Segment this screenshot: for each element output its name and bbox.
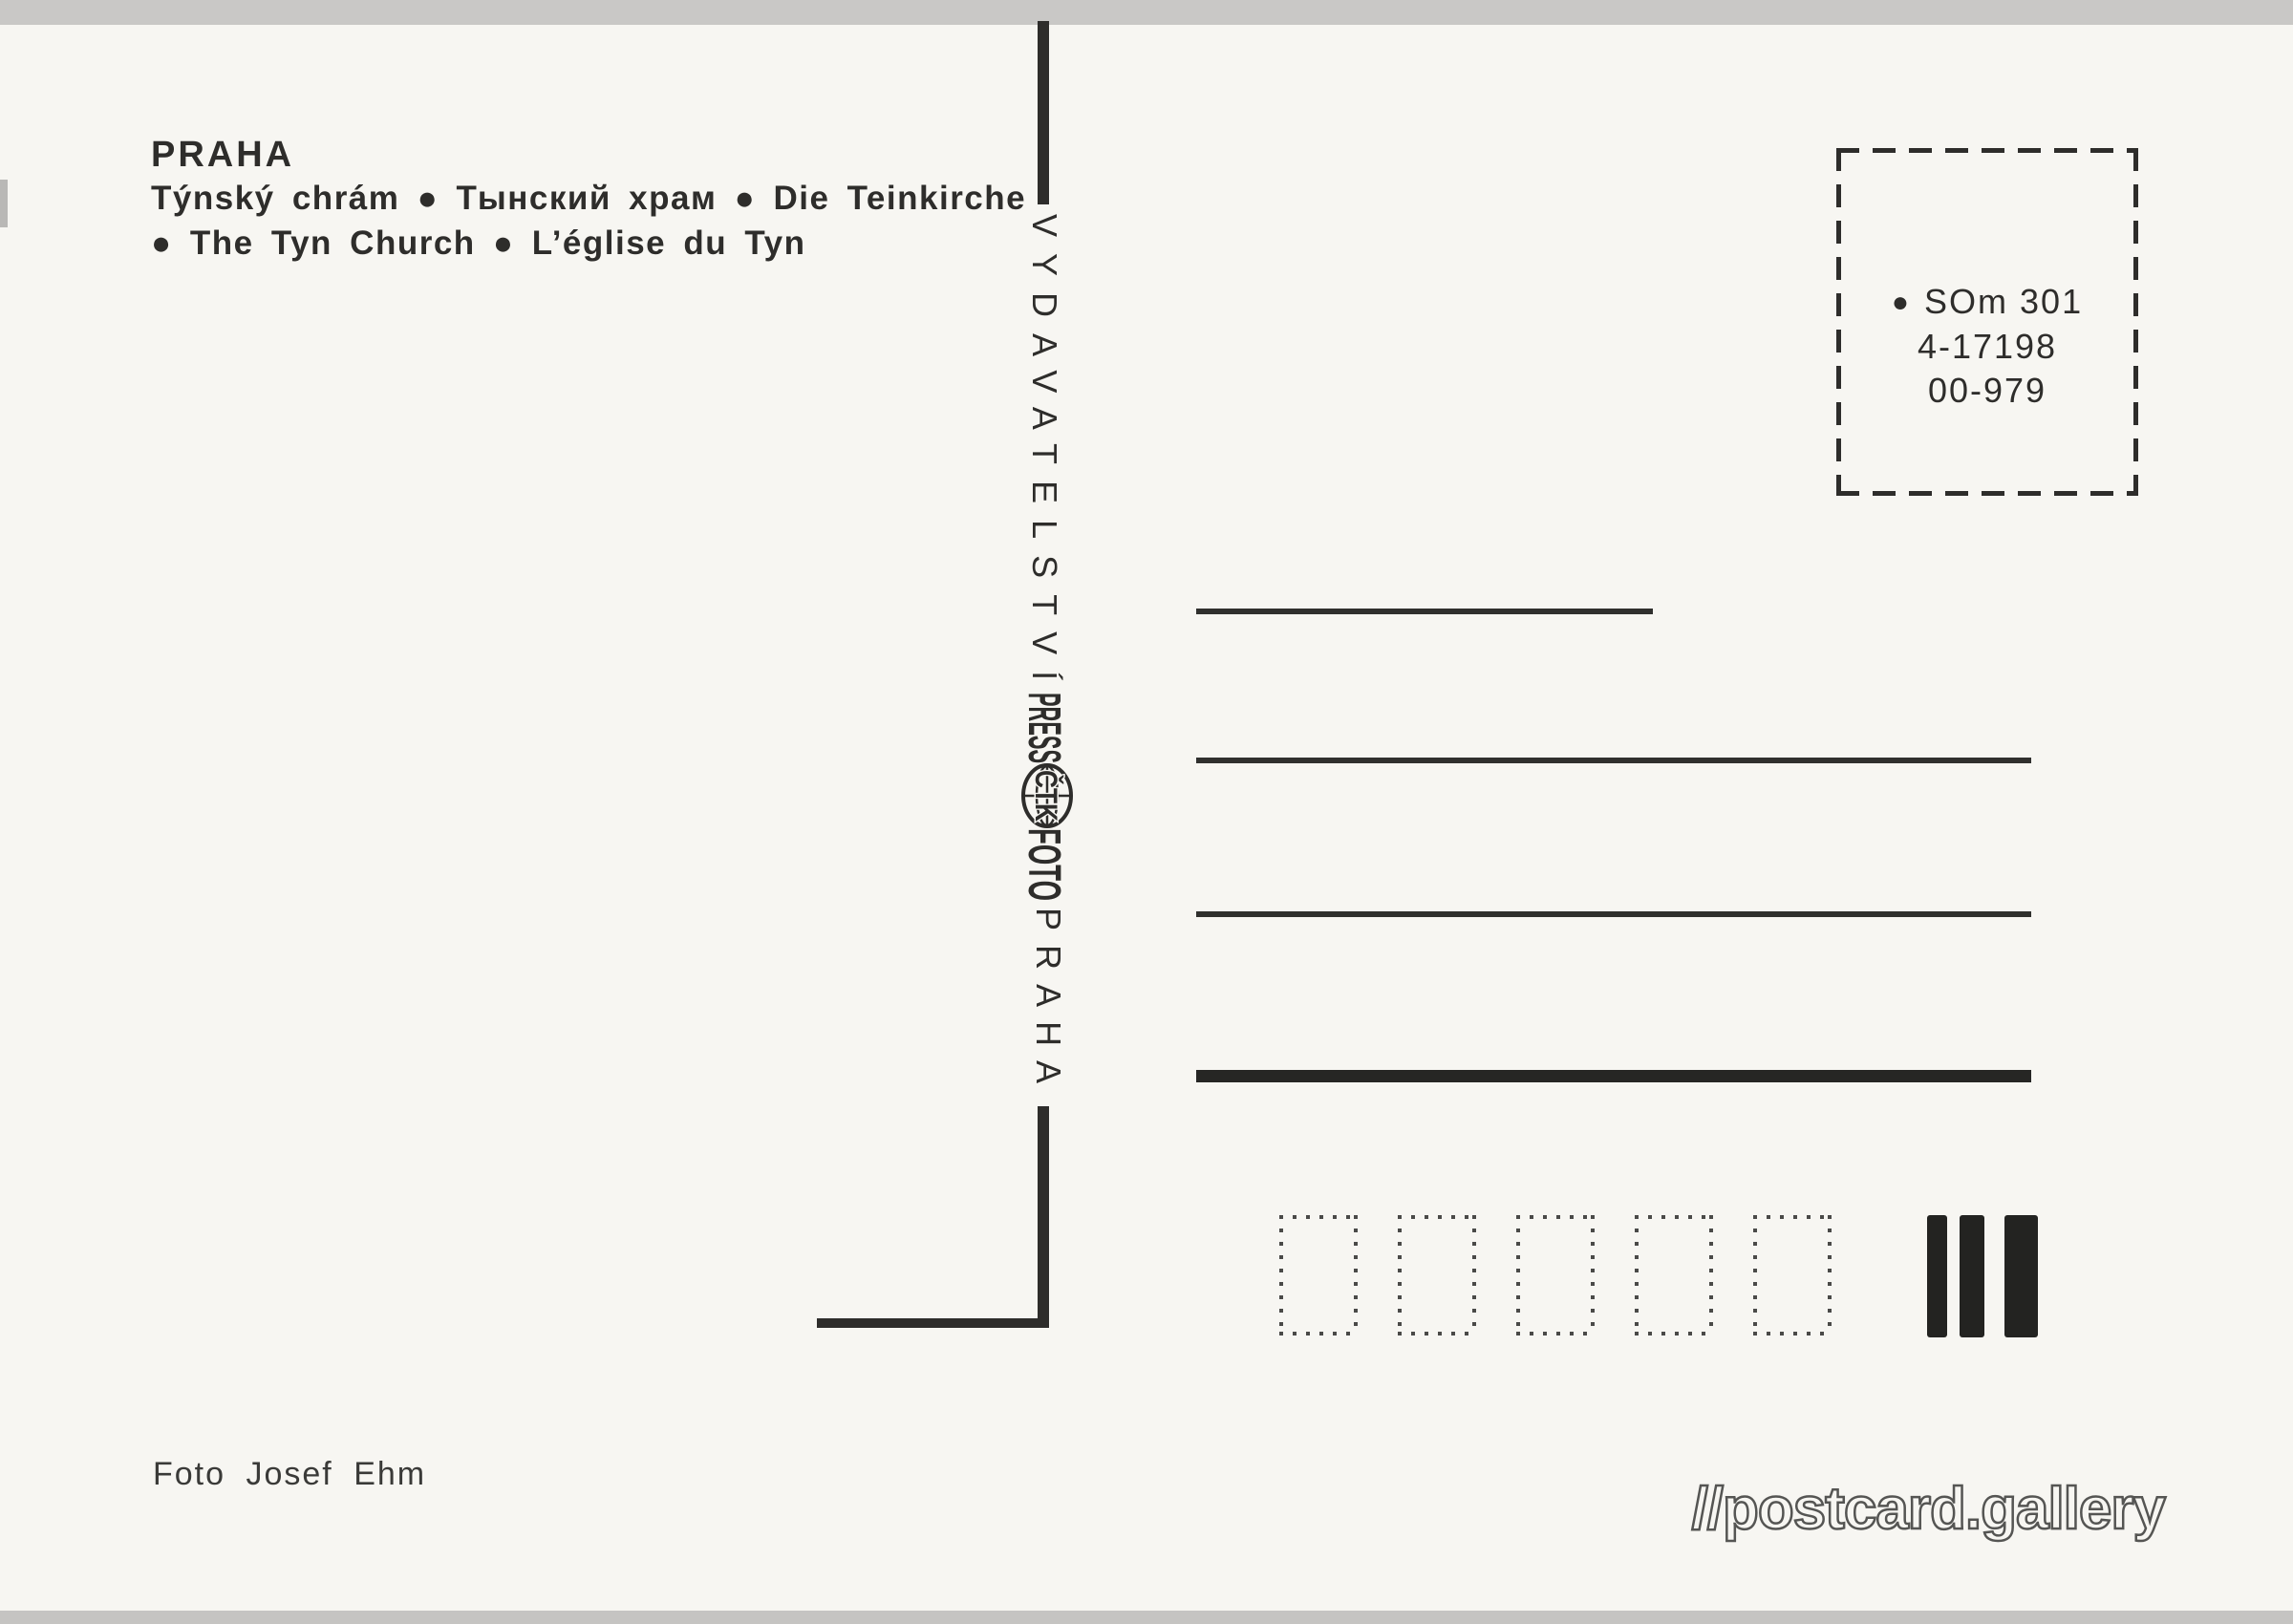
stamp-code-line-3: 00-979 <box>1836 369 2138 413</box>
postal-code-box <box>1279 1215 1358 1336</box>
address-line-2 <box>1196 758 2031 763</box>
address-line-3 <box>1196 911 2031 917</box>
scanner-edge-top <box>0 0 2293 25</box>
stamp-box: ●SOm 301 4-17198 00-979 <box>1836 148 2138 496</box>
divider-rule-top <box>1038 21 1049 204</box>
page-title: PRAHA <box>151 134 1026 176</box>
caption-line-en-fr: ● The Tyn Church ● L’église du Tyn <box>151 221 1026 266</box>
press-label: PRESS <box>1018 693 1069 763</box>
scanner-edge-bottom <box>0 1611 2293 1624</box>
stamp-code-block: ●SOm 301 4-17198 00-979 <box>1836 280 2138 413</box>
publisher-name-vertical: VYDAVATELSTVÍ <box>1024 214 1065 696</box>
bullet-icon: ● <box>1892 281 1911 325</box>
divider-rule-bottom <box>1038 1106 1049 1328</box>
postal-code-box <box>1516 1215 1595 1336</box>
sorting-bar <box>2004 1215 2038 1337</box>
postal-code-box <box>1753 1215 1832 1336</box>
scanner-notch-left <box>0 180 8 227</box>
stamp-code-line-1: ●SOm 301 <box>1836 280 2138 325</box>
divider-rule-foot <box>817 1318 1049 1328</box>
sorting-bar <box>1927 1215 1947 1337</box>
address-line-thick <box>1196 1070 2031 1082</box>
agency-monogram: ČTK <box>1029 770 1063 822</box>
postal-code-box <box>1398 1215 1476 1336</box>
publisher-city-vertical: PRAHA <box>1028 908 1069 1098</box>
postal-code-box <box>1635 1215 1713 1336</box>
ctk-pressfoto-logo: PRESS ČTK FOTO <box>1007 691 1083 908</box>
stamp-code-line-2: 4-17198 <box>1836 325 2138 369</box>
foto-label: FOTO <box>1018 828 1069 901</box>
watermark: //postcard.gallery <box>1692 1475 2165 1543</box>
postcard-back: PRAHA Týnský chrám ● Тынский храм ● Die … <box>0 0 2293 1624</box>
title-block: PRAHA Týnský chrám ● Тынский храм ● Die … <box>151 134 1026 266</box>
stamp-series: SOm 301 <box>1924 282 2083 321</box>
globe-icon: ČTK <box>1023 765 1071 826</box>
address-line-short <box>1196 609 1653 614</box>
sorting-bar <box>1960 1215 1984 1337</box>
caption-line-multilang: Týnský chrám ● Тынский храм ● Die Teinki… <box>151 176 1026 221</box>
photo-credit: Foto Josef Ehm <box>153 1456 426 1493</box>
